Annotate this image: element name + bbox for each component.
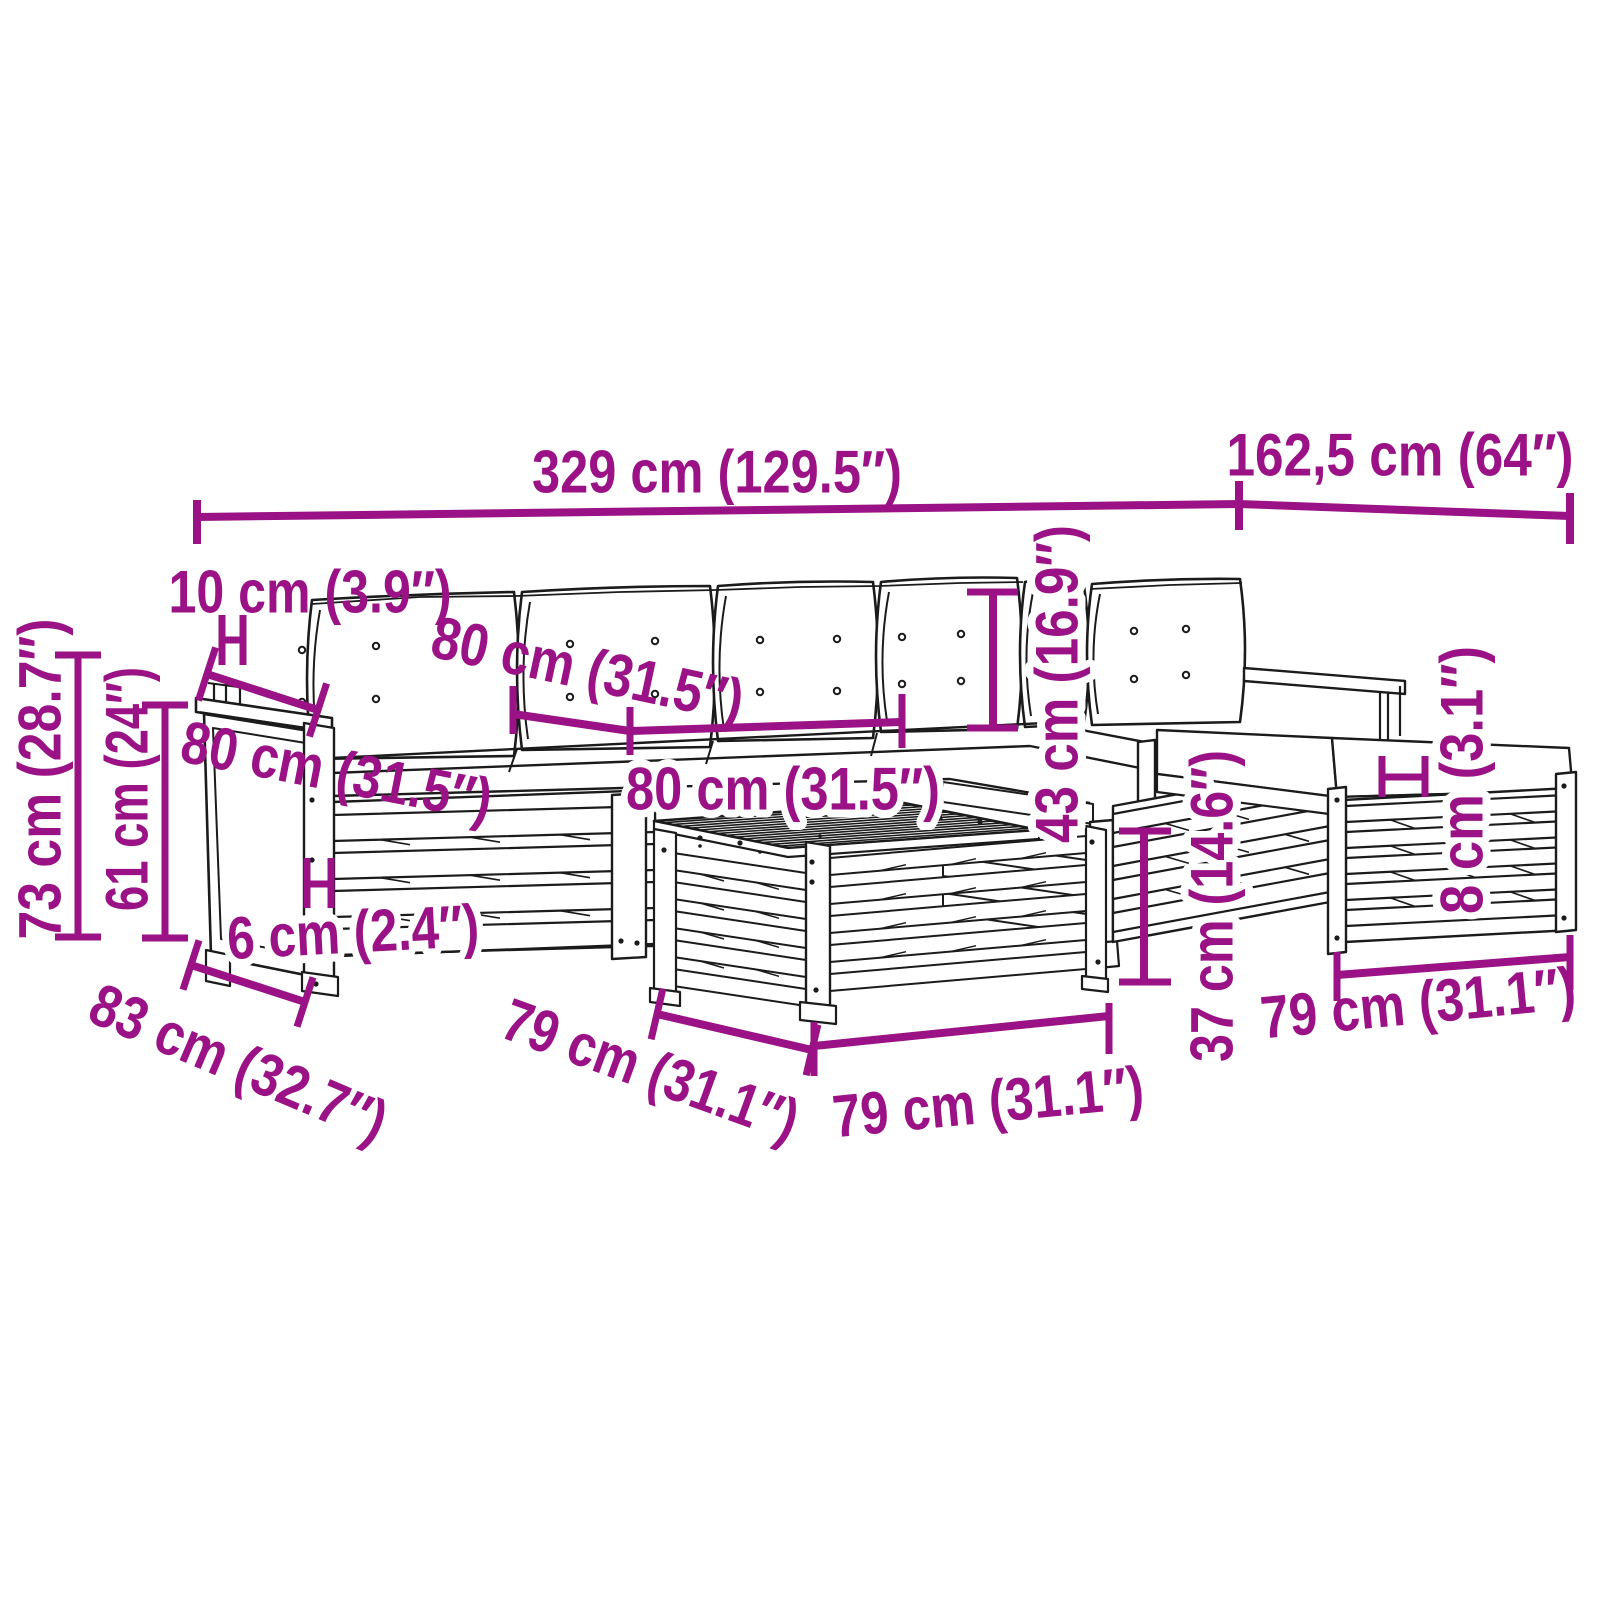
svg-text:329 cm (129.5″): 329 cm (129.5″)	[532, 439, 902, 506]
svg-text:37 cm (14.6″): 37 cm (14.6″)	[1179, 750, 1246, 1062]
svg-text:6 cm (2.4″): 6 cm (2.4″)	[225, 892, 480, 972]
svg-text:8 cm (3.1″): 8 cm (3.1″)	[1429, 646, 1496, 914]
svg-text:162,5 cm (64″): 162,5 cm (64″)	[1227, 422, 1574, 489]
svg-text:73 cm (28.7″): 73 cm (28.7″)	[7, 619, 74, 940]
svg-text:43 cm (16.9″): 43 cm (16.9″)	[1024, 525, 1091, 843]
svg-text:80 cm (31.5″): 80 cm (31.5″)	[626, 756, 940, 823]
svg-text:61 cm (24″): 61 cm (24″)	[94, 667, 161, 911]
svg-text:10 cm (3.9″): 10 cm (3.9″)	[169, 559, 452, 626]
